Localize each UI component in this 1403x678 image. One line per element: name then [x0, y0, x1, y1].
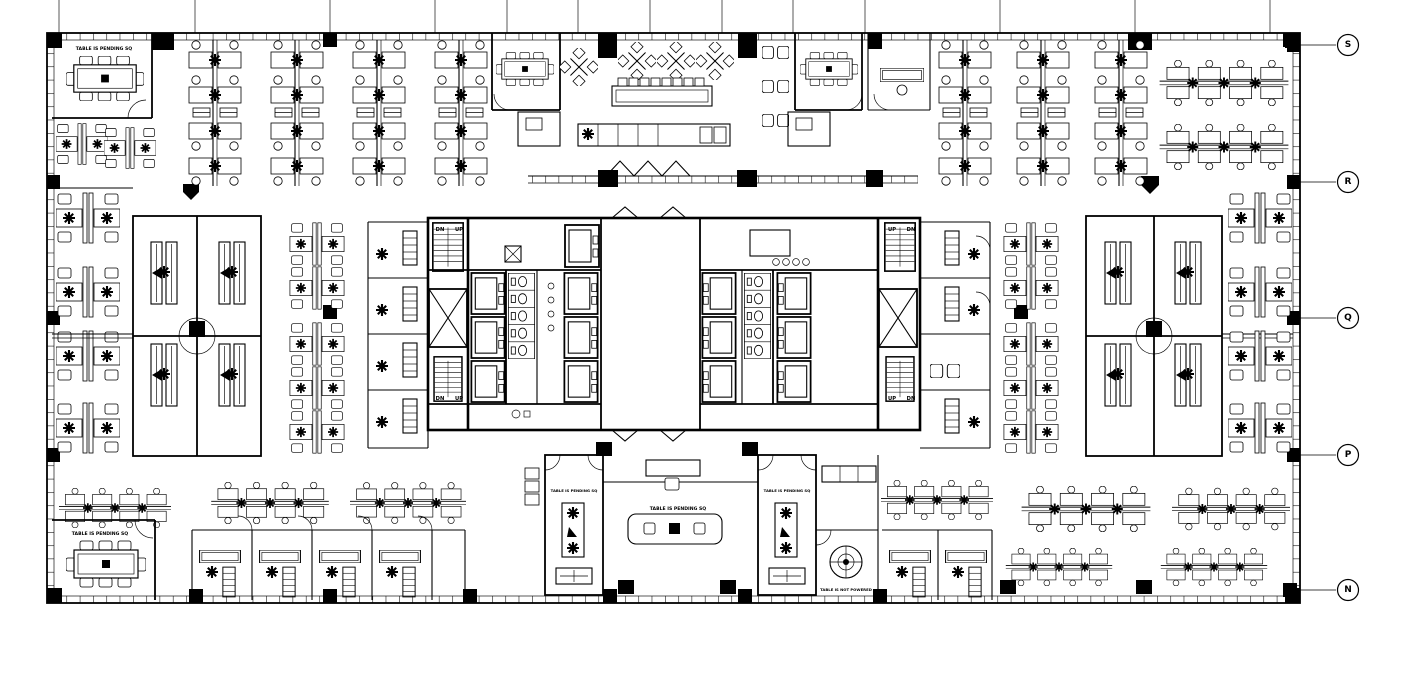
- door-arc: [1136, 336, 1154, 354]
- stair-direction-label: UP: [455, 396, 463, 402]
- workstation-pod: [56, 403, 120, 453]
- communal-table: [612, 78, 712, 106]
- cafe-table: [559, 47, 600, 88]
- door-arc: [298, 516, 312, 530]
- grid-bubble-label: P: [1345, 450, 1352, 460]
- benching-cluster: [1161, 548, 1267, 586]
- door-arc: [135, 520, 153, 538]
- workstation-pod: [290, 367, 344, 409]
- small-rooms-south-east: [882, 530, 992, 600]
- workstation-pod: [1228, 331, 1292, 381]
- door-arc: [128, 100, 146, 118]
- workstation-pod: [1228, 193, 1292, 243]
- conference-table: [66, 541, 146, 587]
- stair-direction-label: DN: [436, 227, 445, 233]
- elevator-bank-left: [471, 225, 599, 402]
- door-arc: [588, 455, 603, 470]
- room-annotation: TABLE IS PENDING SQ: [76, 46, 133, 52]
- stair-direction-label: DN: [907, 227, 916, 233]
- benching-cluster: [435, 40, 487, 186]
- door-arc: [976, 292, 990, 306]
- workstation-pod: [56, 267, 120, 317]
- benching-cluster: [1095, 40, 1147, 186]
- cafe-table: [656, 41, 697, 82]
- reception-desk: [646, 460, 700, 476]
- office-desks: [151, 344, 177, 406]
- pantry-cafe: [559, 41, 736, 146]
- door-arc: [197, 336, 215, 354]
- north-zone: TABLE IS PENDING SQ: [52, 33, 1288, 188]
- reception-vestibule: TABLE IS PENDING SQ TABLE IS PENDING SQ …: [525, 442, 878, 600]
- room-annotation: TABLE IS PENDING SQ: [650, 506, 707, 512]
- floor-plan-page: S R Q P N DN UP DN UP U: [0, 0, 1403, 678]
- small-rooms-south-west: [192, 516, 465, 600]
- south-zone: TABLE IS PENDING SQ: [52, 442, 1290, 600]
- workstations-below-conf-nw: [52, 124, 156, 188]
- office-desks: [1175, 344, 1201, 406]
- meeting-table: [800, 52, 858, 85]
- grid-bubble-Q: Q: [1300, 308, 1359, 329]
- copier: [796, 118, 812, 130]
- floor-plan-drawing: S R Q P N DN UP DN UP U: [0, 0, 1403, 678]
- office-desks: [1175, 242, 1201, 304]
- grid-bubble-label: R: [1345, 177, 1352, 187]
- entry-canopy: [183, 161, 1159, 200]
- west-wing: [52, 193, 428, 456]
- workstation-pod: [1004, 367, 1058, 409]
- stairwell-sw: DN UP: [434, 357, 463, 402]
- vestibule-room-left: TABLE IS PENDING SQ: [545, 455, 603, 595]
- section-marker-icon: [183, 184, 199, 200]
- cafe-table: [695, 41, 736, 82]
- door-arc: [976, 236, 990, 250]
- door-arc: [1154, 336, 1172, 354]
- building-core: DN UP DN UP UP DN UP DN: [428, 207, 920, 441]
- benching-cluster: [353, 40, 405, 186]
- benching-cluster: [881, 480, 993, 520]
- elevator-shaft-icon: [879, 289, 917, 347]
- room-annotation: TABLE IS NOT POWERED: [820, 587, 872, 592]
- door-arc: [846, 94, 862, 110]
- reception-center: TABLE IS PENDING SQ: [603, 460, 758, 544]
- benching-cluster: [1017, 40, 1069, 186]
- office-desk: [880, 68, 924, 82]
- workstation-pod: [290, 267, 344, 309]
- folding-partition: [606, 161, 690, 176]
- meeting-room-a: [492, 33, 560, 146]
- conference-table: [66, 56, 144, 101]
- benching-cluster: [1172, 488, 1290, 530]
- workstation-pod: [290, 323, 344, 365]
- door-arc: [816, 530, 831, 545]
- small-rooms-west-of-core: [368, 222, 428, 448]
- stairwell-se: UP DN: [886, 357, 915, 402]
- workstation-pod: [290, 223, 344, 265]
- top-wall-mullions: [47, 33, 1300, 40]
- copier: [526, 118, 542, 130]
- door-arc: [179, 336, 197, 354]
- stair-direction-label: UP: [888, 227, 896, 233]
- room-annotation: TABLE IS PENDING SQ: [72, 531, 129, 537]
- stair-direction-label: DN: [436, 396, 445, 402]
- grid-bubble-R: R: [1300, 172, 1359, 193]
- benching-cluster: [1160, 60, 1289, 106]
- office-block-west: [133, 216, 261, 456]
- pantry-counter: [578, 124, 730, 146]
- benching-cluster: [1022, 486, 1151, 532]
- grid-bubble-label: S: [1345, 40, 1351, 50]
- workstation-pod: [1004, 267, 1058, 309]
- office-desks: [219, 242, 245, 304]
- workstation-pod: [290, 411, 344, 453]
- room-annotation: TABLE IS PENDING SQ: [764, 488, 811, 493]
- stairwell-nw: DN UP: [433, 223, 463, 271]
- machine-room: [750, 230, 790, 256]
- grid-bubble-P: P: [1300, 445, 1359, 466]
- office-desks: [1105, 344, 1131, 406]
- benching-cluster: [189, 40, 241, 186]
- lounge-chairs: [930, 364, 960, 378]
- benching-cluster: [939, 40, 991, 186]
- vestibule-room-right: TABLE IS PENDING SQ: [758, 455, 816, 595]
- office-block-east: [1086, 216, 1222, 456]
- round-table-room: TABLE IS NOT POWERED: [816, 455, 878, 600]
- lounge-chairs-column: [762, 46, 789, 126]
- office-desks: [151, 242, 177, 304]
- stair-direction-label: UP: [888, 396, 896, 402]
- east-wing: [920, 193, 1293, 456]
- stair-direction-label: DN: [907, 396, 916, 402]
- door-arc: [801, 455, 816, 470]
- workstation-pod: [56, 193, 120, 243]
- elevator-shaft-icon: [429, 289, 467, 347]
- workstation-pod: [1228, 267, 1292, 317]
- workstation-pod: [1004, 411, 1058, 453]
- cafe-table: [617, 41, 658, 82]
- grid-bubble-label: N: [1344, 585, 1352, 595]
- counter: [822, 466, 876, 482]
- workstation-pod: [1004, 323, 1058, 365]
- benching-cluster: [350, 482, 466, 523]
- benching-cluster: [271, 40, 323, 186]
- benching-cluster: [1006, 548, 1112, 586]
- grid-bubble-S: S: [1300, 35, 1359, 56]
- door-arc: [494, 94, 510, 110]
- workstation-pod: [1228, 403, 1292, 453]
- reception-chair: [665, 478, 679, 490]
- grid-bubble-N: N: [1300, 580, 1359, 601]
- office-desks: [219, 344, 245, 406]
- door-arc: [874, 94, 890, 110]
- stair-direction-label: UP: [455, 227, 463, 233]
- workstation-pod: [56, 331, 120, 381]
- benching-cluster: [1160, 124, 1289, 170]
- meeting-table: [496, 52, 554, 85]
- small-rooms-east-of-core: [920, 222, 990, 448]
- door-arc: [238, 516, 252, 530]
- lobby-doors: [612, 207, 686, 441]
- office-chair: [897, 85, 907, 95]
- room-annotation: TABLE IS PENDING SQ: [551, 488, 598, 493]
- grid-lines-top: [59, 0, 1270, 33]
- restroom-left: [508, 273, 554, 418]
- door-arc: [758, 455, 773, 470]
- door-arc: [545, 455, 560, 470]
- conference-room-nw: TABLE IS PENDING SQ: [52, 33, 152, 118]
- benching-cluster: [211, 482, 329, 524]
- workstation-pod: [1004, 223, 1058, 265]
- meeting-room-b: [788, 33, 862, 146]
- stairwell-ne: UP DN: [885, 223, 916, 271]
- grid-bubble-label: Q: [1344, 313, 1352, 323]
- office-desks: [1105, 242, 1131, 304]
